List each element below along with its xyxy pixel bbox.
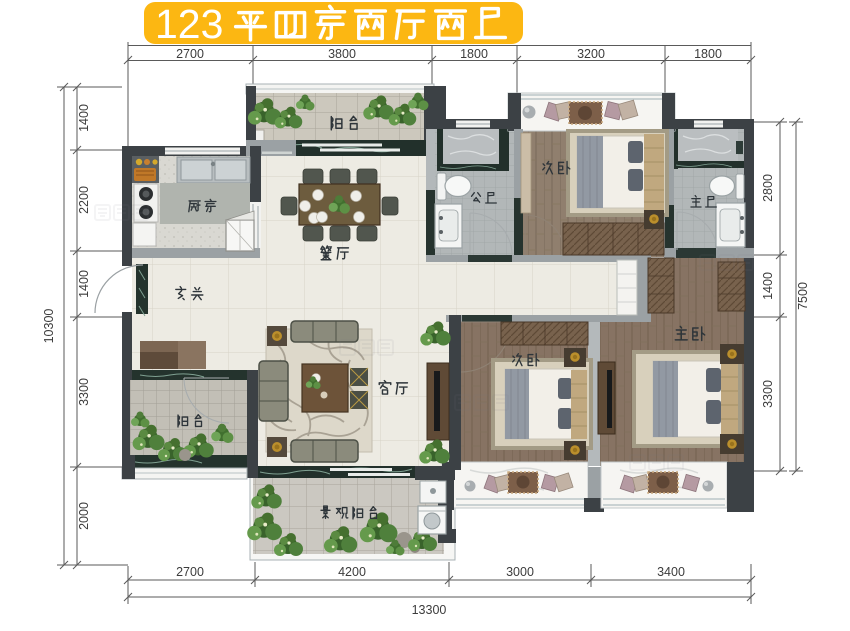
svg-text:1400: 1400 <box>761 272 775 300</box>
svg-text:2700: 2700 <box>176 47 204 61</box>
svg-text:1800: 1800 <box>694 47 722 61</box>
svg-text:3300: 3300 <box>77 378 91 406</box>
svg-text:7500: 7500 <box>796 282 810 310</box>
svg-text:2700: 2700 <box>176 565 204 579</box>
svg-text:2000: 2000 <box>77 502 91 530</box>
svg-text:13300: 13300 <box>412 603 447 617</box>
svg-text:3000: 3000 <box>506 565 534 579</box>
svg-text:2200: 2200 <box>77 186 91 214</box>
svg-text:3400: 3400 <box>657 565 685 579</box>
svg-text:1400: 1400 <box>77 270 91 298</box>
svg-text:3300: 3300 <box>761 380 775 408</box>
svg-text:10300: 10300 <box>42 309 56 344</box>
svg-text:4200: 4200 <box>338 565 366 579</box>
svg-text:1400: 1400 <box>77 104 91 132</box>
svg-text:3200: 3200 <box>577 47 605 61</box>
svg-text:123: 123 <box>155 1 223 47</box>
svg-text:1800: 1800 <box>460 47 488 61</box>
svg-text:3800: 3800 <box>328 47 356 61</box>
svg-text:2800: 2800 <box>761 174 775 202</box>
